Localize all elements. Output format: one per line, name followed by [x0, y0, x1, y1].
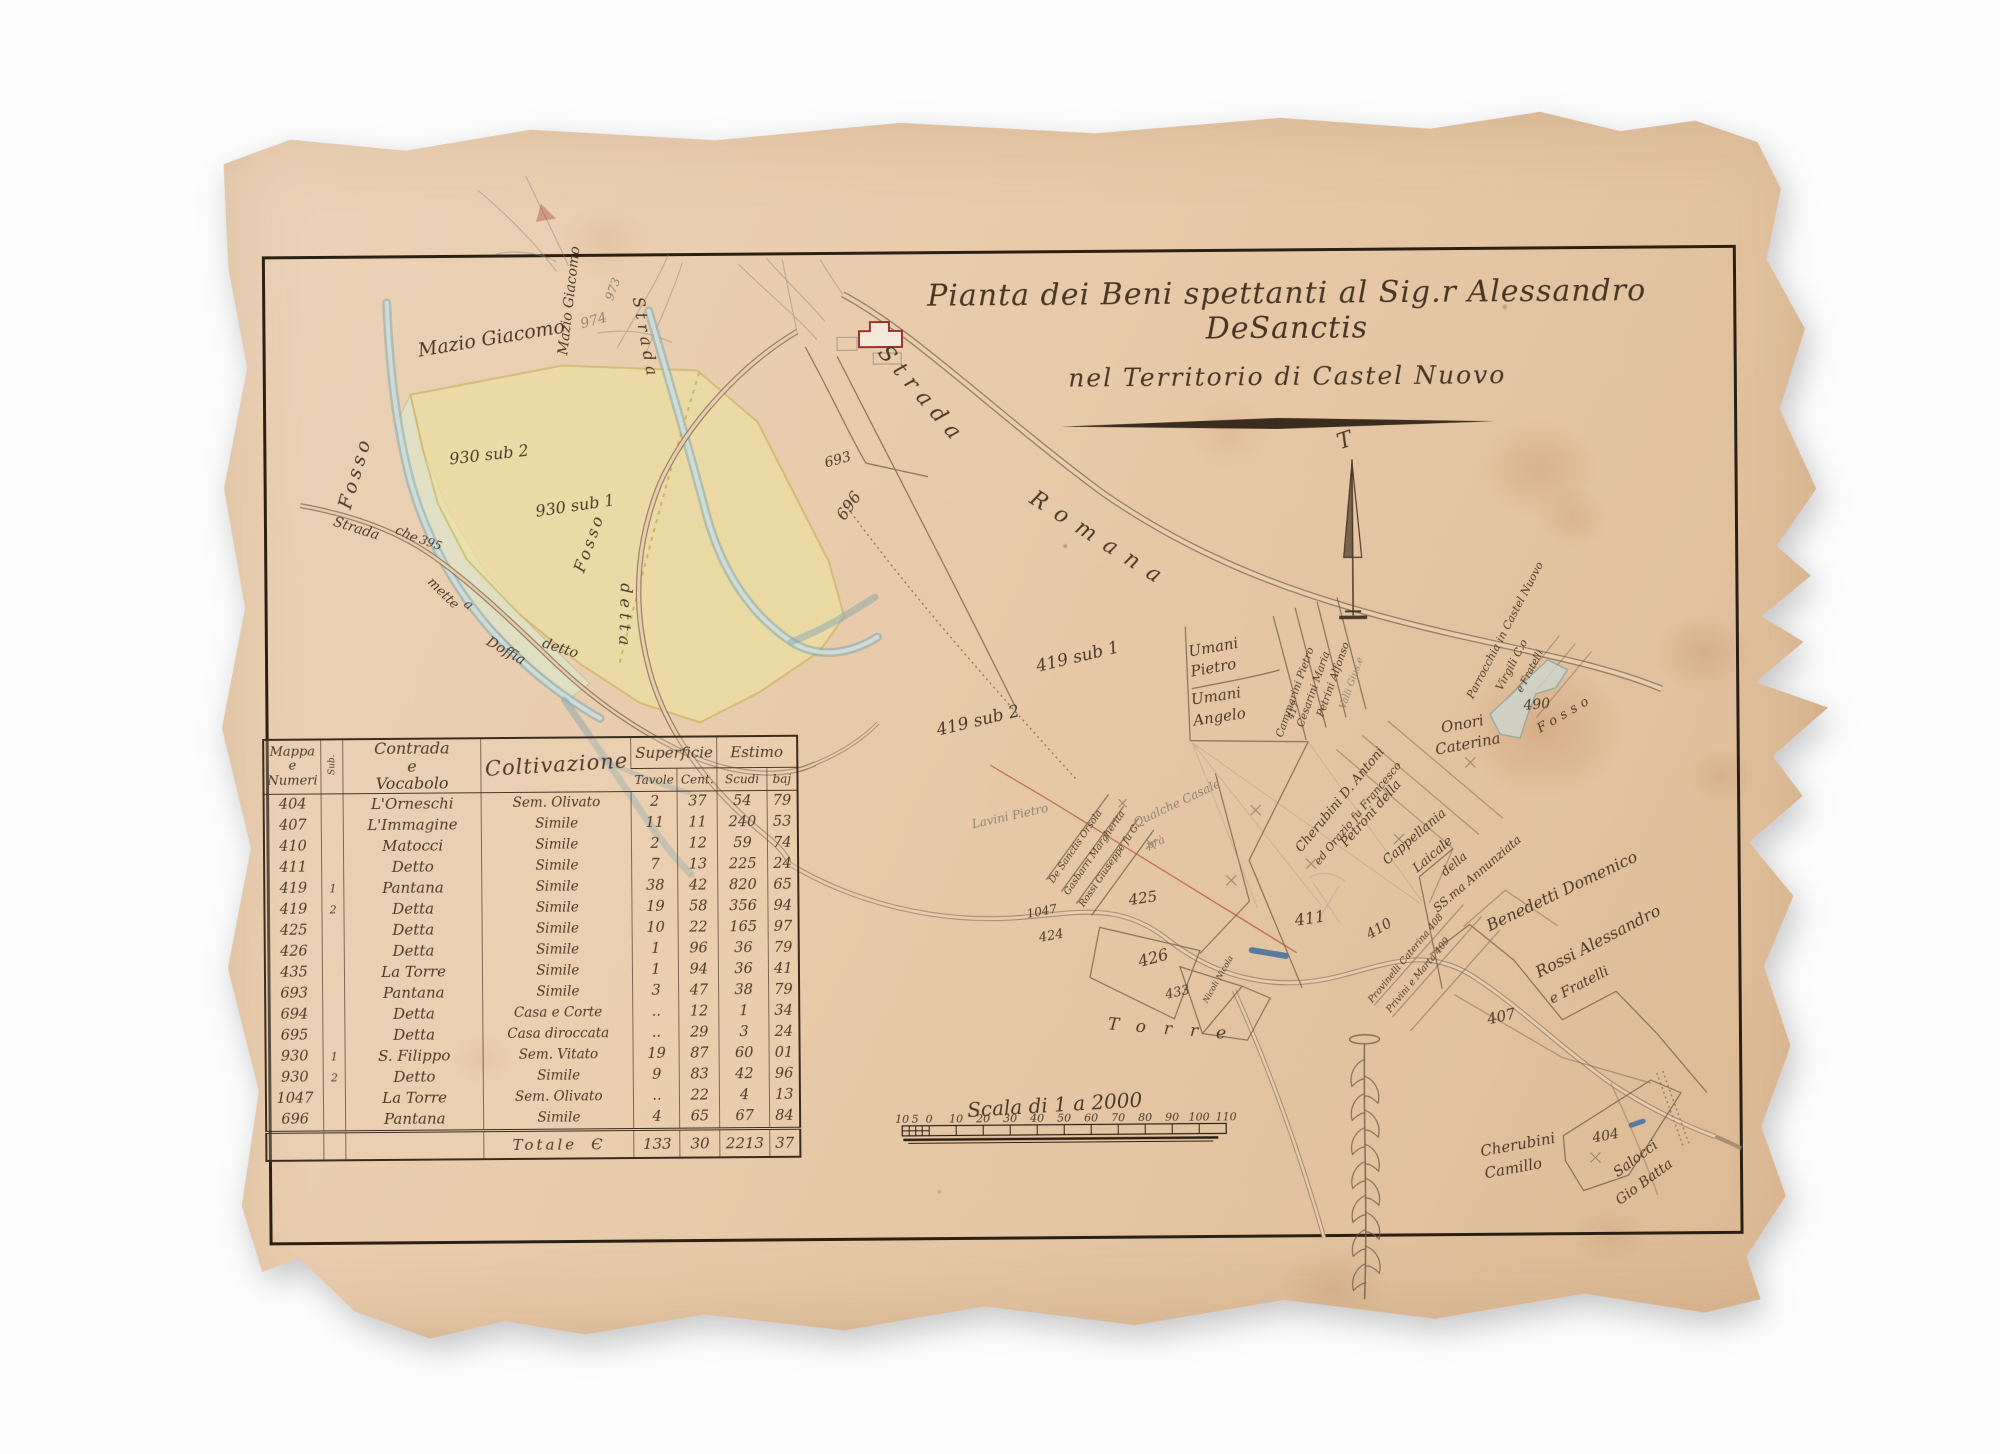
table-cell: Casa e Corte [483, 1002, 634, 1024]
table-cell: 87 [680, 1043, 720, 1064]
table-cell: Simile [484, 1107, 635, 1131]
table-cell: 426 [265, 941, 323, 962]
map-title-line1: Pianta dei Beni spettanti al Sig.r Aless… [897, 273, 1678, 349]
map-label: 433 [1163, 983, 1191, 1003]
table-cell: 930 [266, 1046, 324, 1067]
table-cell: 38 [719, 980, 769, 1001]
table-cell: Detto [344, 856, 482, 878]
col-header-estimo: Estimo [717, 736, 797, 768]
table-cell: 411 [264, 857, 322, 878]
table-cell: 4 [719, 1085, 769, 1106]
inset-label: Mazio Giacomo [555, 245, 583, 357]
table-cell: 930 [266, 1067, 324, 1088]
table-cell: 60 [719, 1043, 769, 1064]
scale-tick: 5 [912, 1113, 919, 1126]
map-label: prà [1145, 833, 1167, 852]
col-header-tavole: Tavole [631, 768, 677, 791]
table-cell: 694 [265, 1004, 323, 1025]
table-cell [322, 941, 344, 962]
total-tavole: 133 [634, 1129, 680, 1158]
table-cell: 419 [264, 878, 322, 899]
table-cell: 2 [632, 833, 678, 854]
table-cell: 693 [265, 983, 323, 1004]
table-cell: 425 [265, 920, 323, 941]
table-cell: 38 [632, 875, 678, 896]
table-cell: Simile [482, 855, 633, 877]
table-cell: 2 [322, 899, 344, 920]
table-cell: Sem. Vitato [483, 1044, 634, 1066]
map-title-line2: nel Territorio di Castel Nuovo [897, 359, 1677, 394]
table-cell: 2 [323, 1067, 345, 1088]
table-cell: Simile [481, 813, 632, 835]
table-cell: Simile [483, 981, 634, 1003]
table-cell: 7 [632, 854, 678, 875]
table-cell: 19 [632, 896, 678, 917]
total-label: TotaleЄ [484, 1129, 635, 1159]
table-cell: 22 [679, 917, 719, 938]
table-cell: 94 [679, 959, 719, 980]
inset-label: 974 [579, 310, 609, 333]
table-cell: Detta [344, 919, 482, 941]
map-label: 490 [1522, 696, 1551, 715]
table-cell: Simile [483, 1065, 634, 1087]
table-cell: 3 [719, 1022, 769, 1043]
table-cell: Detta [344, 898, 482, 920]
torre-stream [789, 857, 1715, 1144]
table-cell: 36 [718, 938, 768, 959]
col-header-contrada: Contrada e Vocabolo [343, 738, 481, 793]
table-cell: Casa diroccata [483, 1023, 634, 1045]
map-label: T [1334, 426, 1358, 455]
col-header-coltivazione: Coltivazione [479, 733, 632, 796]
table-cell: 1 [719, 1001, 769, 1022]
map-label: 696 [832, 488, 865, 524]
table-cell: 96 [769, 1064, 799, 1085]
north-arrow [1338, 459, 1367, 617]
table-cell: 435 [265, 962, 323, 983]
table-cell: .. [633, 1001, 679, 1022]
table-cell: La Torre [346, 1087, 484, 1109]
table-cell: 96 [679, 938, 719, 959]
table-cell [322, 836, 344, 857]
map-label: 419 sub 1 [1033, 638, 1121, 677]
table-cell: 01 [769, 1043, 799, 1064]
table-cell: La Torre [345, 961, 483, 983]
table-cell: 24 [768, 854, 798, 875]
map-label: Angelo [1190, 704, 1247, 730]
table-cell: 2 [632, 791, 678, 813]
col-header-cent: Cent. [677, 768, 717, 791]
map-sheet: Mazio GiacomoMazio GiacomoFosso930 sub 2… [195, 94, 1840, 1347]
table-cell: 42 [678, 875, 718, 896]
map-label: 407 [1484, 1004, 1517, 1028]
table-cell: Pantana [346, 1108, 484, 1132]
table-cell [324, 1109, 346, 1132]
table-cell: 41 [769, 959, 799, 980]
title-flourish [1061, 416, 1495, 430]
table-cell: 58 [678, 896, 718, 917]
table-cell: Pantana [345, 982, 483, 1004]
table-cell: 97 [768, 917, 798, 938]
col-header-baj: baj [767, 767, 797, 790]
table-cell [323, 962, 345, 983]
table-cell: 11 [678, 812, 718, 833]
table-cell: 165 [718, 917, 768, 938]
map-label: 404 [1590, 1126, 1620, 1147]
table-cell: Detta [345, 1024, 483, 1046]
table-cell: 12 [679, 1001, 719, 1022]
parcel-table: Mappa e Numeri Sub. Contrada e Vocabolo … [262, 735, 801, 1162]
table-cell: 4 [634, 1106, 680, 1129]
map-sheet-wrap: Mazio GiacomoMazio GiacomoFosso930 sub 2… [195, 94, 1840, 1347]
table-cell [323, 1004, 345, 1025]
scale-tick: 110 [1216, 1110, 1237, 1123]
map-label: Cherubini [1479, 1129, 1557, 1160]
table-cell: 419 [264, 899, 322, 920]
table-cell: 404 [264, 794, 322, 816]
scale-tick: 80 [1138, 1111, 1152, 1124]
table-cell: .. [633, 1022, 679, 1043]
col-header-sub: Sub. [321, 739, 343, 793]
table-cell: 42 [719, 1064, 769, 1085]
table-cell: 410 [264, 836, 322, 857]
inset-label: Mazio Giacomo [415, 316, 566, 362]
table-cell: 94 [768, 896, 798, 917]
total-scudi: 2213 [720, 1128, 770, 1157]
total-baj: 37 [770, 1128, 800, 1157]
table-cell: 24 [769, 1022, 799, 1043]
table-cell: 820 [718, 875, 768, 896]
table-cell: 83 [680, 1064, 720, 1085]
table-cell: 407 [264, 815, 322, 836]
map-label: 424 [1037, 927, 1065, 946]
table-cell: 37 [678, 791, 718, 813]
table-cell [322, 920, 344, 941]
table-cell: 13 [678, 854, 718, 875]
table-cell [321, 794, 343, 816]
scale-bar: 1050102030405060708090100110Scala di 1 a… [895, 1087, 1237, 1144]
table-cell: Sem. Olivato [484, 1086, 635, 1108]
table-cell: 65 [680, 1106, 720, 1129]
table-cell: .. [634, 1085, 680, 1106]
table-cell: 3 [633, 980, 679, 1001]
table-cell: 19 [634, 1043, 680, 1064]
table-cell: Detta [344, 940, 482, 962]
table-cell: 29 [679, 1022, 719, 1043]
table-cell: 65 [768, 875, 798, 896]
inset-label: 973 [602, 276, 623, 303]
table-cell: 54 [717, 790, 767, 812]
table-cell: 59 [718, 833, 768, 854]
total-row: TotaleЄ 133 30 2213 37 [266, 1128, 800, 1161]
photo-backdrop: Mazio GiacomoMazio GiacomoFosso930 sub 2… [0, 0, 2000, 1454]
table-cell [324, 1088, 346, 1109]
table-cell: 1 [633, 938, 679, 959]
table-cell: Simile [482, 939, 633, 961]
col-header-scudi: Scudi [717, 767, 767, 790]
table-cell: 74 [768, 833, 798, 854]
total-cent: 30 [680, 1129, 720, 1158]
table-cell: 1 [633, 959, 679, 980]
map-label: 426 [1135, 944, 1170, 971]
table-cell: 1047 [266, 1088, 324, 1109]
map-label: Torre [1107, 1014, 1245, 1045]
table-cell: 84 [770, 1106, 800, 1129]
table-cell: 11 [632, 812, 678, 833]
plume-ornament [1349, 1035, 1381, 1300]
map-label: 425 [1126, 887, 1158, 909]
table-cell [321, 815, 343, 836]
table-cell: 67 [720, 1106, 770, 1129]
map-label: detta [615, 583, 636, 651]
scale-tick: 0 [926, 1113, 933, 1126]
table-cell: 34 [769, 1001, 799, 1022]
table-cell [322, 857, 344, 878]
col-header-superficie: Superficie [631, 736, 717, 768]
table-cell: 53 [767, 812, 797, 833]
col-header-mappa: Mappa e Numeri [263, 739, 321, 794]
map-label: 419 sub 2 [934, 701, 1022, 740]
scale-tick: 100 [1189, 1111, 1210, 1124]
table-cell: 36 [719, 959, 769, 980]
map-label: 1047 [1026, 902, 1059, 921]
table-cell [323, 983, 345, 1004]
table-cell: 47 [679, 980, 719, 1001]
table-cell: 356 [718, 896, 768, 917]
table-cell: 79 [768, 938, 798, 959]
table-cell: L'Immagine [343, 814, 481, 836]
inset-parcel-yellow [410, 363, 845, 724]
table-cell: 695 [265, 1025, 323, 1046]
map-title: Pianta dei Beni spettanti al Sig.r Aless… [897, 273, 1678, 394]
table-cell: Simile [482, 834, 633, 856]
table-cell: 13 [769, 1085, 799, 1106]
scale-tick: 90 [1165, 1111, 1179, 1124]
table-cell [323, 1025, 345, 1046]
table-cell: Simile [482, 918, 633, 940]
table-cell: 225 [718, 854, 768, 875]
map-label: Qualche Casale [1131, 777, 1222, 830]
table-cell: S. Filippo [345, 1045, 483, 1067]
table-cell: 1 [322, 878, 344, 899]
table-cell: 12 [678, 833, 718, 854]
table-cell: 240 [717, 812, 767, 833]
inset-label: Fosso [334, 434, 377, 513]
table-cell: 1 [323, 1046, 345, 1067]
map-label: Romana [1024, 485, 1176, 594]
scale-tick: 10 [949, 1112, 963, 1125]
table-cell: 22 [680, 1085, 720, 1106]
table-cell: Pantana [344, 877, 482, 899]
table-cell: L'Orneschi [343, 792, 481, 815]
table-cell: 79 [767, 790, 797, 812]
table-cell: 9 [634, 1064, 680, 1085]
table-cell: Simile [483, 960, 634, 982]
dashed-boundary [844, 502, 1076, 782]
map-label: Lavini Pietro [970, 801, 1050, 832]
scale-tick: 10 [895, 1113, 909, 1126]
table-cell: 696 [266, 1109, 324, 1132]
table-cell: 10 [633, 917, 679, 938]
table-cell: Detto [345, 1066, 483, 1088]
table-cell: 79 [769, 980, 799, 1001]
table-cell: Detta [345, 1003, 483, 1025]
map-label: 693 [823, 449, 853, 472]
map-label: 410 [1363, 915, 1395, 943]
table-cell: Simile [482, 876, 633, 898]
parcel-boundaries [805, 340, 1708, 1197]
map-label: 411 [1292, 906, 1326, 929]
table-cell: Matocci [344, 835, 482, 857]
table-cell: Simile [482, 897, 633, 919]
pencil-red-mark [536, 204, 556, 222]
